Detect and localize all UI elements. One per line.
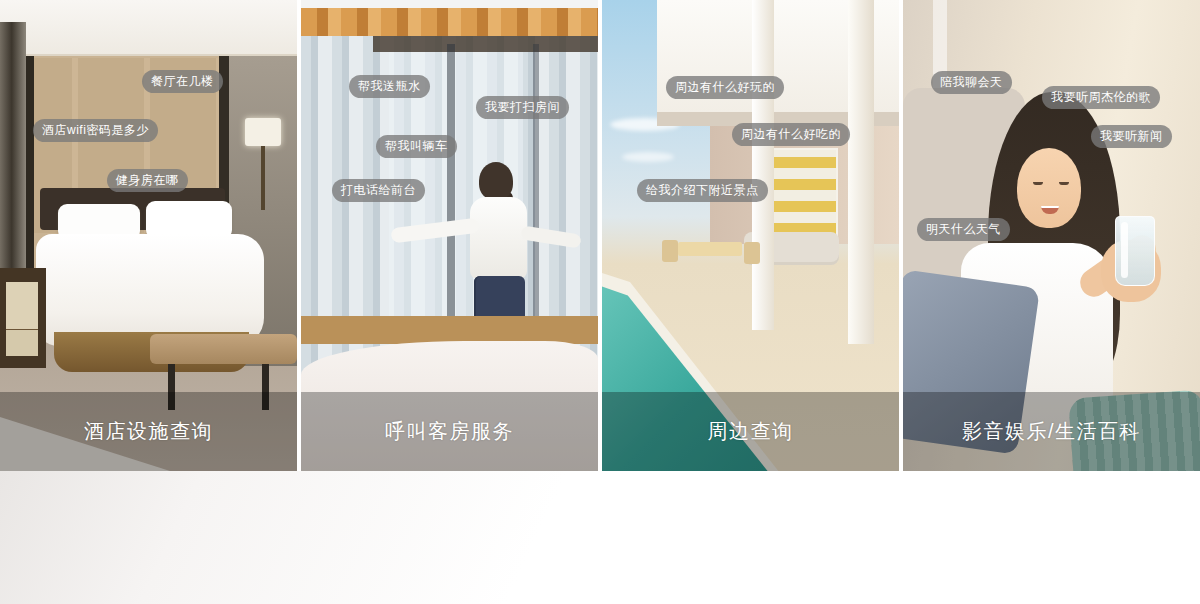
query-bubble: 我要打扫房间 xyxy=(476,96,569,119)
query-bubble: 餐厅在几楼 xyxy=(142,70,223,93)
panel-caption: 呼叫客房服务 xyxy=(385,418,514,445)
bed xyxy=(36,234,264,346)
query-bubble: 明天什么天气 xyxy=(917,218,1010,241)
feature-panel-hotel-facilities: 餐厅在几楼 酒店wifi密码是多少 健身房在哪 酒店设施查询 xyxy=(0,0,297,471)
section-footer: 24H客房AI管家 一句呼唤，快速处理客需 xyxy=(0,471,1200,604)
query-bubble: 帮我送瓶水 xyxy=(349,75,430,98)
caption-overlay: 影音娱乐/生活百科 xyxy=(903,392,1200,471)
query-bubble: 我要听新闻 xyxy=(1091,125,1172,148)
query-bubble: 陪我聊会天 xyxy=(931,71,1012,94)
panel-caption: 酒店设施查询 xyxy=(84,418,213,445)
query-bubble: 健身房在哪 xyxy=(107,169,188,192)
query-bubble: 给我介绍下附近景点 xyxy=(637,179,768,202)
panel-caption: 影音娱乐/生活百科 xyxy=(962,418,1141,445)
caption-overlay: 酒店设施查询 xyxy=(0,392,297,471)
query-bubble: 周边有什么好玩的 xyxy=(666,76,784,99)
feature-panel-room-service: 帮我送瓶水 我要打扫房间 帮我叫辆车 打电话给前台 呼叫客房服务 xyxy=(301,0,598,471)
panel-caption: 周边查询 xyxy=(708,418,794,445)
caption-overlay: 周边查询 xyxy=(602,392,899,471)
bench xyxy=(150,334,297,364)
hotel-ai-butler-section: 餐厅在几楼 酒店wifi密码是多少 健身房在哪 酒店设施查询 帮我送瓶水 我要打… xyxy=(0,0,1200,604)
floor-lamp xyxy=(245,118,281,146)
query-bubble: 周边有什么好吃的 xyxy=(732,123,850,146)
query-bubble: 酒店wifi密码是多少 xyxy=(33,119,158,142)
woman-figure xyxy=(479,162,513,200)
query-bubble: 我要听周杰伦的歌 xyxy=(1042,86,1160,109)
query-bubble: 打电话给前台 xyxy=(332,179,425,202)
caption-overlay: 呼叫客房服务 xyxy=(301,392,598,471)
query-bubble: 帮我叫辆车 xyxy=(376,135,457,158)
feature-panel-nearby: 周边有什么好玩的 周边有什么好吃的 给我介绍下附近景点 周边查询 xyxy=(602,0,899,471)
feature-panel-entertainment: 陪我聊会天 我要听周杰伦的歌 我要听新闻 明天什么天气 影音娱乐/生活百科 xyxy=(903,0,1200,471)
